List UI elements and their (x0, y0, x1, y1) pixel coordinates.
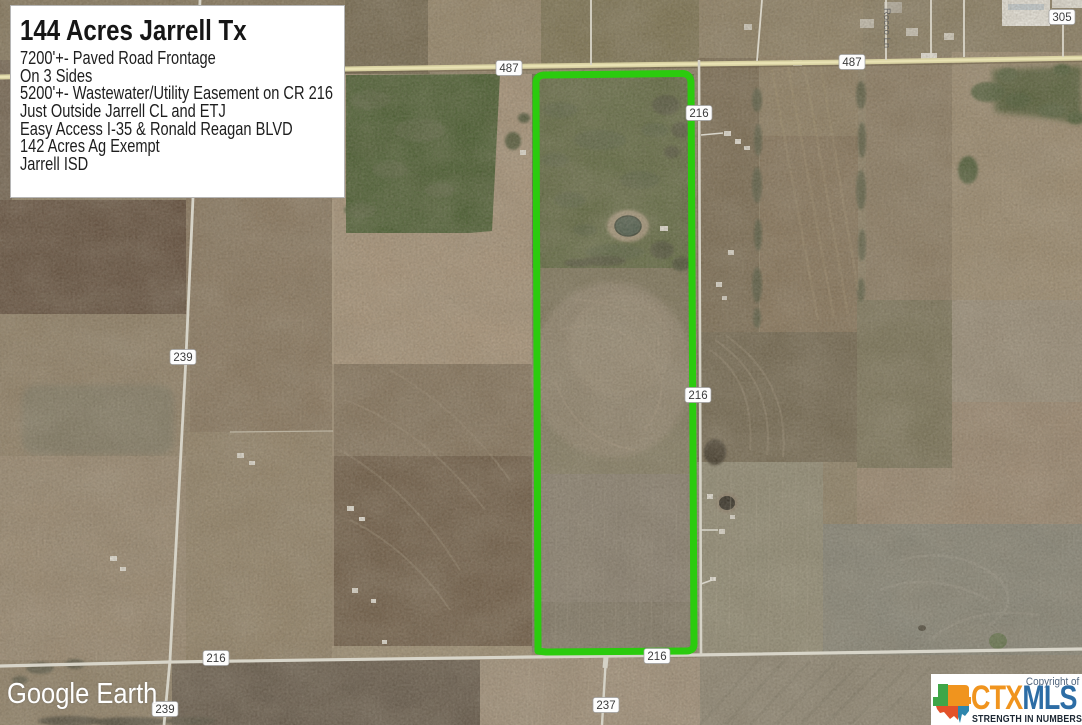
svg-text:216: 216 (647, 651, 666, 663)
svg-text:237: 237 (596, 700, 615, 712)
svg-text:305: 305 (1052, 12, 1071, 24)
svg-text:Rocco Ln: Rocco Ln (881, 8, 892, 48)
svg-text:216: 216 (689, 108, 708, 120)
svg-text:216: 216 (688, 390, 707, 402)
svg-text:487: 487 (499, 63, 518, 75)
svg-text:487: 487 (842, 57, 861, 69)
svg-text:239: 239 (173, 352, 192, 364)
svg-text:216: 216 (206, 653, 225, 665)
svg-text:239: 239 (155, 704, 174, 716)
